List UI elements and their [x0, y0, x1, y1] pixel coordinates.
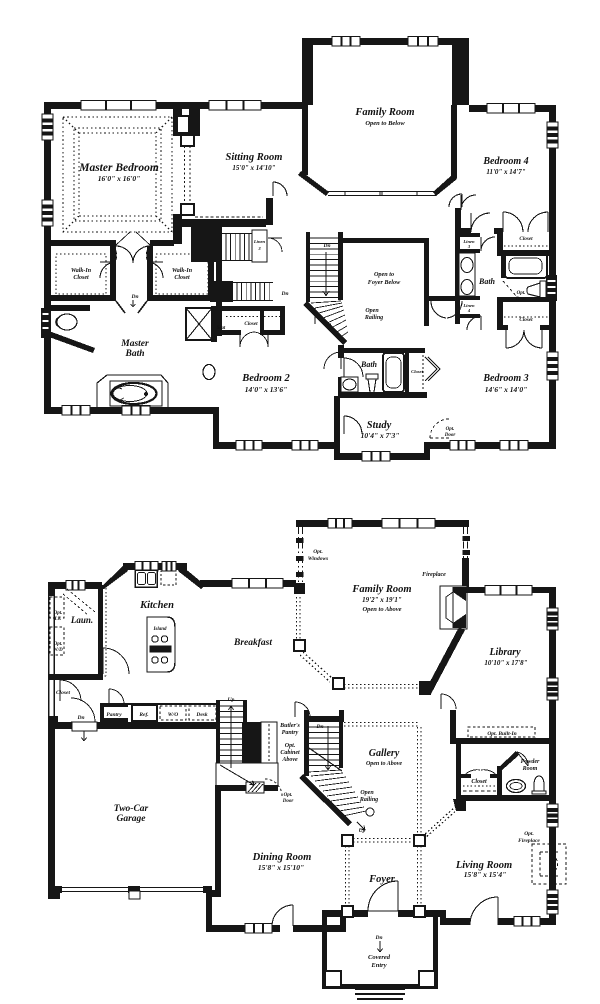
svg-text:Dn: Dn [315, 724, 323, 730]
svg-text:Bedroom 4: Bedroom 4 [482, 156, 528, 167]
svg-text:Island: Island [152, 627, 167, 632]
svg-text:Up: Up [359, 828, 366, 834]
svg-text:Open to Above: Open to Above [366, 761, 402, 767]
svg-text:19'2" x 19'1": 19'2" x 19'1" [362, 596, 402, 604]
svg-text:Open to Above: Open to Above [362, 606, 401, 613]
svg-text:Entry: Entry [370, 962, 386, 969]
svg-text:Open: Open [365, 308, 379, 314]
svg-text:Ref.: Ref. [138, 712, 148, 718]
svg-text:Foyer: Foyer [368, 874, 396, 885]
svg-text:3: 3 [467, 244, 471, 249]
svg-text:14'0" x 13'6": 14'0" x 13'6" [245, 385, 288, 394]
svg-text:Family Room: Family Room [351, 584, 411, 595]
svg-text:Opt. Built-In: Opt. Built-In [487, 731, 516, 737]
svg-text:Master Bedroom: Master Bedroom [78, 162, 159, 174]
svg-text:Powder: Powder [521, 759, 540, 765]
svg-text:Railing: Railing [364, 315, 383, 321]
svg-text:Dn: Dn [374, 935, 382, 941]
svg-text:Foyer Below: Foyer Below [368, 279, 401, 286]
svg-text:Dn: Dn [280, 291, 288, 297]
svg-text:15'8" x 15'4": 15'8" x 15'4" [464, 870, 507, 879]
svg-text:Family Room: Family Room [354, 107, 414, 118]
svg-text:Closet: Closet [174, 275, 190, 281]
svg-text:Opt.: Opt. [54, 642, 63, 647]
svg-text:Opt.: Opt. [285, 743, 296, 749]
svg-text:Cabinet: Cabinet [280, 750, 300, 756]
svg-text:Bedroom 2: Bedroom 2 [241, 373, 290, 384]
svg-text:Laun.: Laun. [70, 615, 93, 625]
svg-text:Closet: Closet [411, 369, 423, 374]
svg-text:Dining Room: Dining Room [252, 852, 312, 863]
svg-text:Bath: Bath [360, 360, 378, 369]
svg-text:Door: Door [515, 297, 527, 302]
svg-text:15'0" x 14'10": 15'0" x 14'10" [232, 164, 275, 172]
svg-text:Linen: Linen [253, 239, 266, 244]
svg-text:Two-Car: Two-Car [114, 804, 149, 814]
svg-text:Desk: Desk [195, 712, 208, 718]
svg-text:Pantry: Pantry [282, 730, 299, 736]
svg-text:Open to Below: Open to Below [365, 120, 405, 127]
svg-text:Study: Study [367, 420, 392, 431]
svg-text:Fireplace: Fireplace [518, 838, 540, 844]
svg-text:Windows: Windows [308, 556, 329, 562]
svg-text:Kitchen: Kitchen [139, 600, 174, 611]
svg-text:10'4" x 7'3": 10'4" x 7'3" [361, 431, 400, 440]
svg-text:Door: Door [444, 433, 456, 438]
svg-text:Bedroom 3: Bedroom 3 [482, 373, 528, 384]
svg-text:Room: Room [522, 766, 538, 772]
svg-text:Bath: Bath [124, 349, 144, 359]
svg-text:Master: Master [120, 339, 149, 349]
svg-text:Breakfast: Breakfast [233, 638, 272, 648]
svg-text:Pantry: Pantry [106, 712, 122, 718]
svg-text:Open: Open [360, 790, 374, 796]
svg-text:Butler's: Butler's [279, 723, 300, 729]
svg-text:Open to: Open to [374, 271, 394, 278]
svg-text:W/O: W/O [168, 712, 178, 718]
svg-text:Door: Door [282, 799, 294, 804]
svg-text:Closet: Closet [519, 317, 533, 323]
svg-text:14'6" x 14'0": 14'6" x 14'0" [485, 385, 528, 394]
svg-text:Up: Up [228, 697, 235, 703]
svg-text:Bath: Bath [478, 277, 496, 286]
svg-text:11'0" x 14'7": 11'0" x 14'7" [486, 168, 525, 176]
svg-text:Closet: Closet [519, 236, 533, 242]
svg-text:Above: Above [281, 757, 298, 763]
svg-text:Seat: Seat [217, 326, 226, 331]
svg-text:W/D: W/D [53, 648, 63, 653]
svg-text:Fireplace: Fireplace [422, 572, 446, 578]
svg-text:Library: Library [488, 647, 521, 658]
svg-text:Opt.: Opt. [313, 549, 323, 555]
svg-text:Opt.: Opt. [517, 291, 526, 296]
svg-text:Opt.: Opt. [446, 427, 455, 432]
svg-text:Closet: Closet [56, 690, 71, 696]
svg-text:Opt.: Opt. [284, 793, 293, 798]
svg-text:Closet: Closet [244, 321, 258, 327]
svg-text:Opt.: Opt. [524, 831, 534, 837]
svg-text:Railing: Railing [359, 797, 378, 803]
svg-text:Gallery: Gallery [369, 748, 400, 759]
svg-text:Dn: Dn [322, 243, 330, 249]
svg-text:4: 4 [467, 308, 471, 313]
svg-text:Garage: Garage [116, 814, 146, 824]
svg-text:LT.: LT. [54, 617, 62, 622]
svg-text:Sitting Room: Sitting Room [226, 152, 283, 163]
svg-text:15'8" x 15'10": 15'8" x 15'10" [258, 863, 304, 872]
svg-text:16'0" x 16'0": 16'0" x 16'0" [98, 174, 141, 183]
svg-text:Walk-In: Walk-In [71, 268, 92, 274]
svg-text:Dn: Dn [130, 294, 138, 300]
svg-text:Closet: Closet [471, 779, 487, 785]
svg-text:Walk-In: Walk-In [172, 268, 193, 274]
svg-text:Dn: Dn [76, 715, 84, 721]
svg-text:Closet: Closet [73, 275, 89, 281]
svg-text:Opt.: Opt. [54, 611, 63, 616]
svg-text:10'10" x 17'8": 10'10" x 17'8" [484, 659, 527, 667]
svg-text:Covered: Covered [368, 954, 391, 961]
